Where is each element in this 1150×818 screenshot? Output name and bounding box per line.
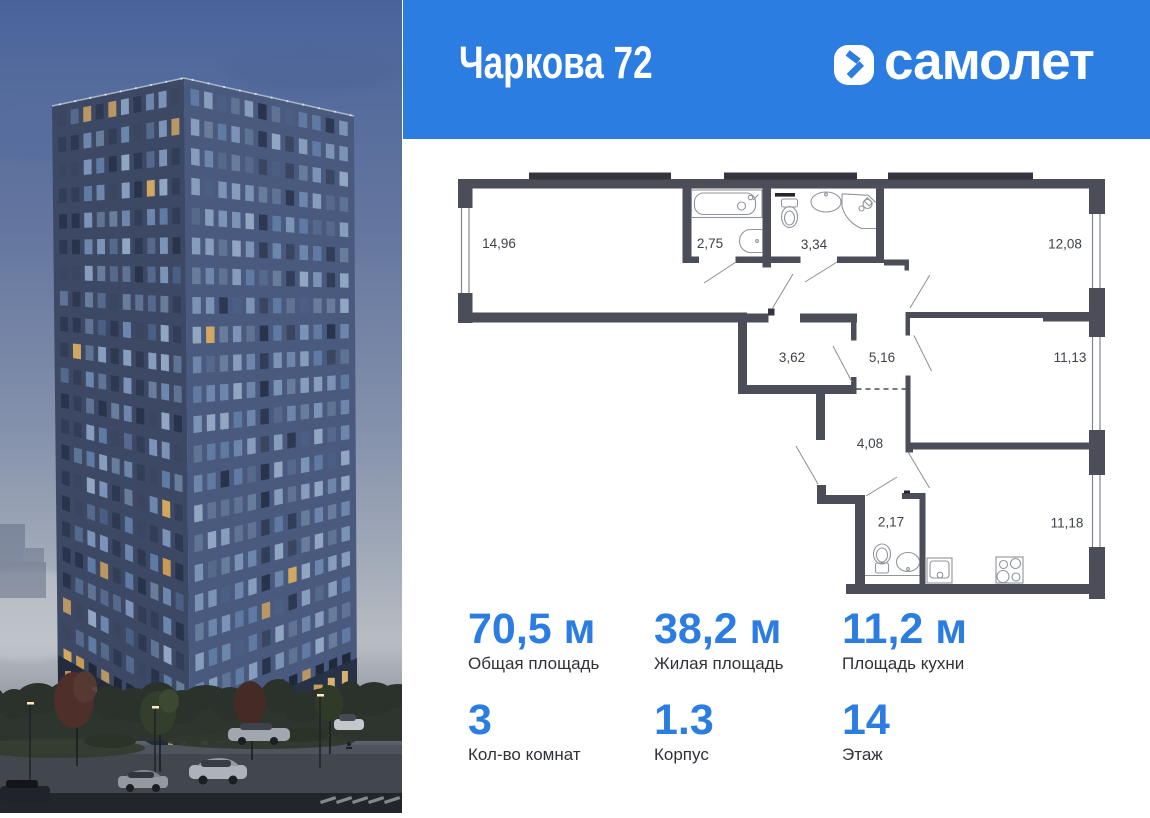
svg-text:11,13: 11,13	[1054, 350, 1087, 365]
svg-text:5,16: 5,16	[869, 350, 895, 365]
svg-text:14,96: 14,96	[482, 236, 516, 251]
svg-text:2,75: 2,75	[697, 236, 723, 251]
svg-text:3,34: 3,34	[801, 237, 828, 252]
svg-text:11,18: 11,18	[1051, 516, 1084, 531]
svg-text:2,17: 2,17	[878, 515, 904, 530]
svg-text:12,08: 12,08	[1048, 237, 1082, 252]
svg-text:самолет: самолет	[884, 45, 1094, 86]
svg-text:3,62: 3,62	[779, 350, 805, 365]
svg-text:4,08: 4,08	[857, 436, 883, 451]
